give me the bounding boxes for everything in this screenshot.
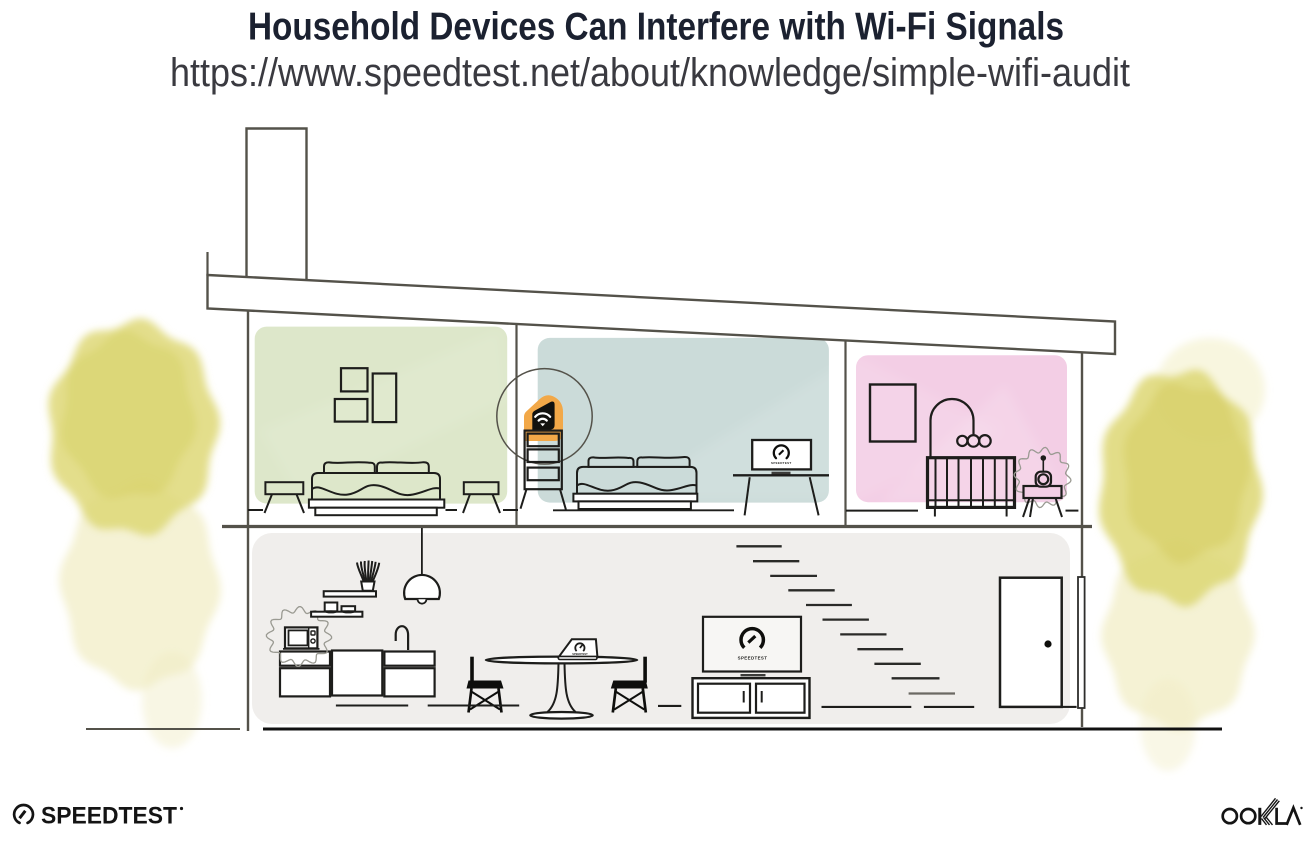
svg-text:Household Devices Can Interfer: Household Devices Can Interfere with Wi-… [248,6,1064,49]
svg-text:SPEEDTEST: SPEEDTEST [572,652,588,656]
svg-text:SPEEDTEST: SPEEDTEST [771,461,792,465]
svg-text:https://www.speedtest.net/abou: https://www.speedtest.net/about/knowledg… [170,51,1130,95]
svg-text:SPEEDTEST: SPEEDTEST [738,656,768,661]
svg-text:SPEEDTEST: SPEEDTEST [41,803,177,830]
